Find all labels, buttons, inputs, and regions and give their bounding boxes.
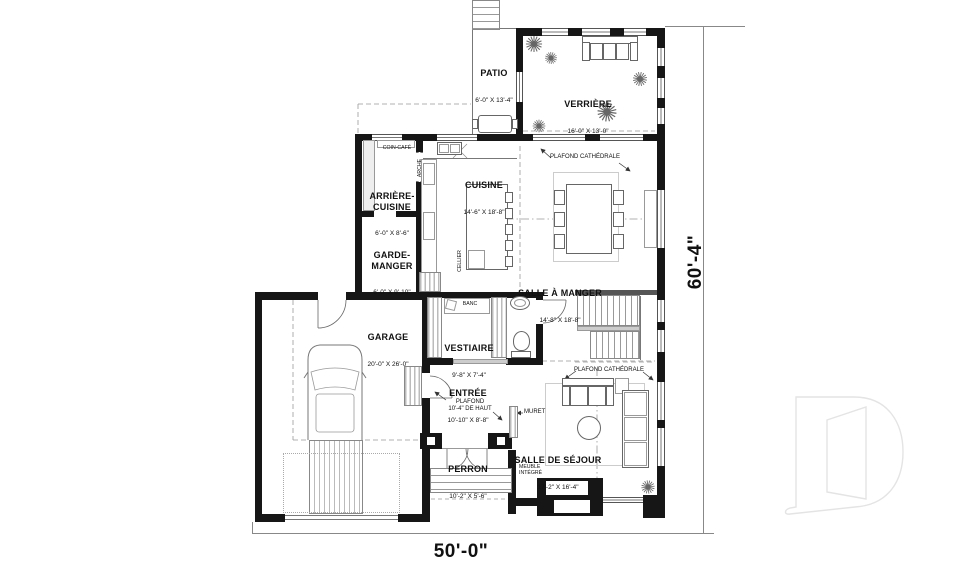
sofa-arm [582,42,590,61]
room-name: PERRON [448,464,488,474]
bbq-shelf [512,119,518,129]
wall [255,292,262,522]
drummond-logo-watermark [786,397,904,514]
chaise-cushion [624,442,647,466]
porch-post-inset [427,437,435,445]
sofa-arm [562,386,570,406]
truck-icon [304,345,366,440]
sofa-arm [630,42,638,61]
room-label-verriere: VERRIÈRE 16'-0" X 13'-0" [564,81,612,154]
window [657,330,665,352]
garage-door-line [285,515,398,516]
room-name: VERRIÈRE [564,99,612,109]
island-stool [505,208,513,219]
room-name: ARRIÈRE- CUISINE [369,191,414,212]
sink-basin [450,144,460,153]
dimension-extension-line [665,26,745,27]
window [582,28,610,36]
room-dims: 14'-8" X 18'-8" [518,317,602,324]
room-label-cuisine: CUISINE 14'-6" X 18'-8" [463,162,504,235]
wall [643,495,665,518]
island-stool [505,256,513,267]
sofa-back [562,378,614,386]
room-name: SALLE À MANGER [518,288,602,298]
dining-chair [554,190,565,205]
window [542,28,568,36]
chaise-cushion [624,392,647,416]
patio-stairs [472,0,500,30]
island-stool [505,192,513,203]
locker-closet [427,297,442,358]
porch-post-inset [497,437,505,445]
floor-plan: PATIO 6'-0" X 13'-4" VERRIÈRE 16'-0" X 1… [0,0,960,569]
room-dims: 6'-0" X 13'-4" [475,97,512,104]
door-opening [318,292,346,300]
room-label-garde-manger: GARDE- MANGER 6'-0" X 9'-10" [371,232,412,315]
wall [398,514,430,522]
wall [355,134,362,300]
room-dims: 6'-0" X 9'-10" [371,289,412,296]
window [603,497,643,503]
room-name: CUISINE [463,180,504,190]
dimension-line-bottom [252,533,714,534]
room-dims: 16'-0" X 13'-0" [564,128,612,135]
room-dims: 10'-2" X 5'-6" [448,493,488,500]
room-dims: 20'-0" X 26'-0" [367,361,408,368]
meuble-integre-label: MEUBLE INTÉGRÉ [519,464,542,476]
dining-table [566,184,612,254]
room-dims: 10'-10" X 8'-8" [447,417,488,424]
room-name: PATIO [475,68,512,78]
room-label-patio: PATIO 6'-0" X 13'-4" [475,50,512,123]
wall [506,358,543,365]
island-stool [505,240,513,251]
wall [255,514,285,522]
room-dims: 14'-6" X 18'-8" [463,209,504,216]
room-label-perron: PERRON 10'-2" X 5'-6" [448,446,488,519]
refrigerator [423,163,435,185]
dimension-extension-line [252,522,253,534]
sofa-cushion [590,43,603,60]
window [657,78,665,98]
plafond-cathedrale-label: PLAFOND CATHÉDRALE [574,367,644,374]
overall-height-dimension: 60'-4" [685,235,707,290]
dining-chair [613,212,624,227]
dining-chair [554,234,565,249]
door-opening [422,373,430,398]
overall-width-dimension: 50'-0" [434,541,489,563]
chaise-cushion [624,417,647,441]
muret-label: MURET [524,409,545,416]
window [657,428,665,466]
cellier-label: CELLIER [458,250,464,272]
wall [610,28,624,36]
garage-apron-outline [283,453,400,513]
room-name: VESTIAIRE [444,343,493,353]
room-dims: 17'-2" X 16'-4" [514,484,601,491]
sink-basin [439,144,449,153]
dining-chair [554,212,565,227]
dining-chair [613,190,624,205]
banc-label: BANC [463,302,477,308]
sofa-cushion [570,386,588,406]
room-label-salle-a-manger: SALLE À MANGER 14'-8" X 18'-8" [518,270,602,343]
patio-door [516,72,523,104]
sofa-cushion [588,386,606,406]
island-stool [505,224,513,235]
window [657,108,665,124]
room-name: GARDE- MANGER [371,250,412,271]
stair-landing-line [640,296,641,360]
room-name: ENTRÉE [447,388,488,398]
sofa-arm [606,386,614,406]
window [657,48,665,66]
window [437,134,477,141]
window [657,190,665,248]
muret-half-wall [509,406,518,438]
toilet-tank [511,351,531,358]
sofa-cushion [603,43,616,60]
window-seat [644,190,657,248]
window [657,382,665,420]
wall-ovens [423,212,435,240]
plafond-cathedrale-label: PLAFOND CATHÉDRALE [550,154,620,161]
wine-cellar [468,250,485,269]
coin-cafe-label: COIN-CAFÉ [383,146,412,152]
window [624,28,646,36]
sofa-cushion [616,43,629,60]
arche-label: ARCHE [418,159,424,177]
garage-door-line [285,519,398,520]
room-name: GARAGE [367,332,408,342]
wall [516,28,542,36]
wall [568,28,582,36]
dining-chair [613,234,624,249]
cabinet [419,272,441,292]
window [657,300,665,322]
plafond-height-label: PLAFOND 10'-4" DE HAUT [448,399,491,413]
room-label-garage: GARAGE 20'-0" X 26'-0" [367,314,408,387]
